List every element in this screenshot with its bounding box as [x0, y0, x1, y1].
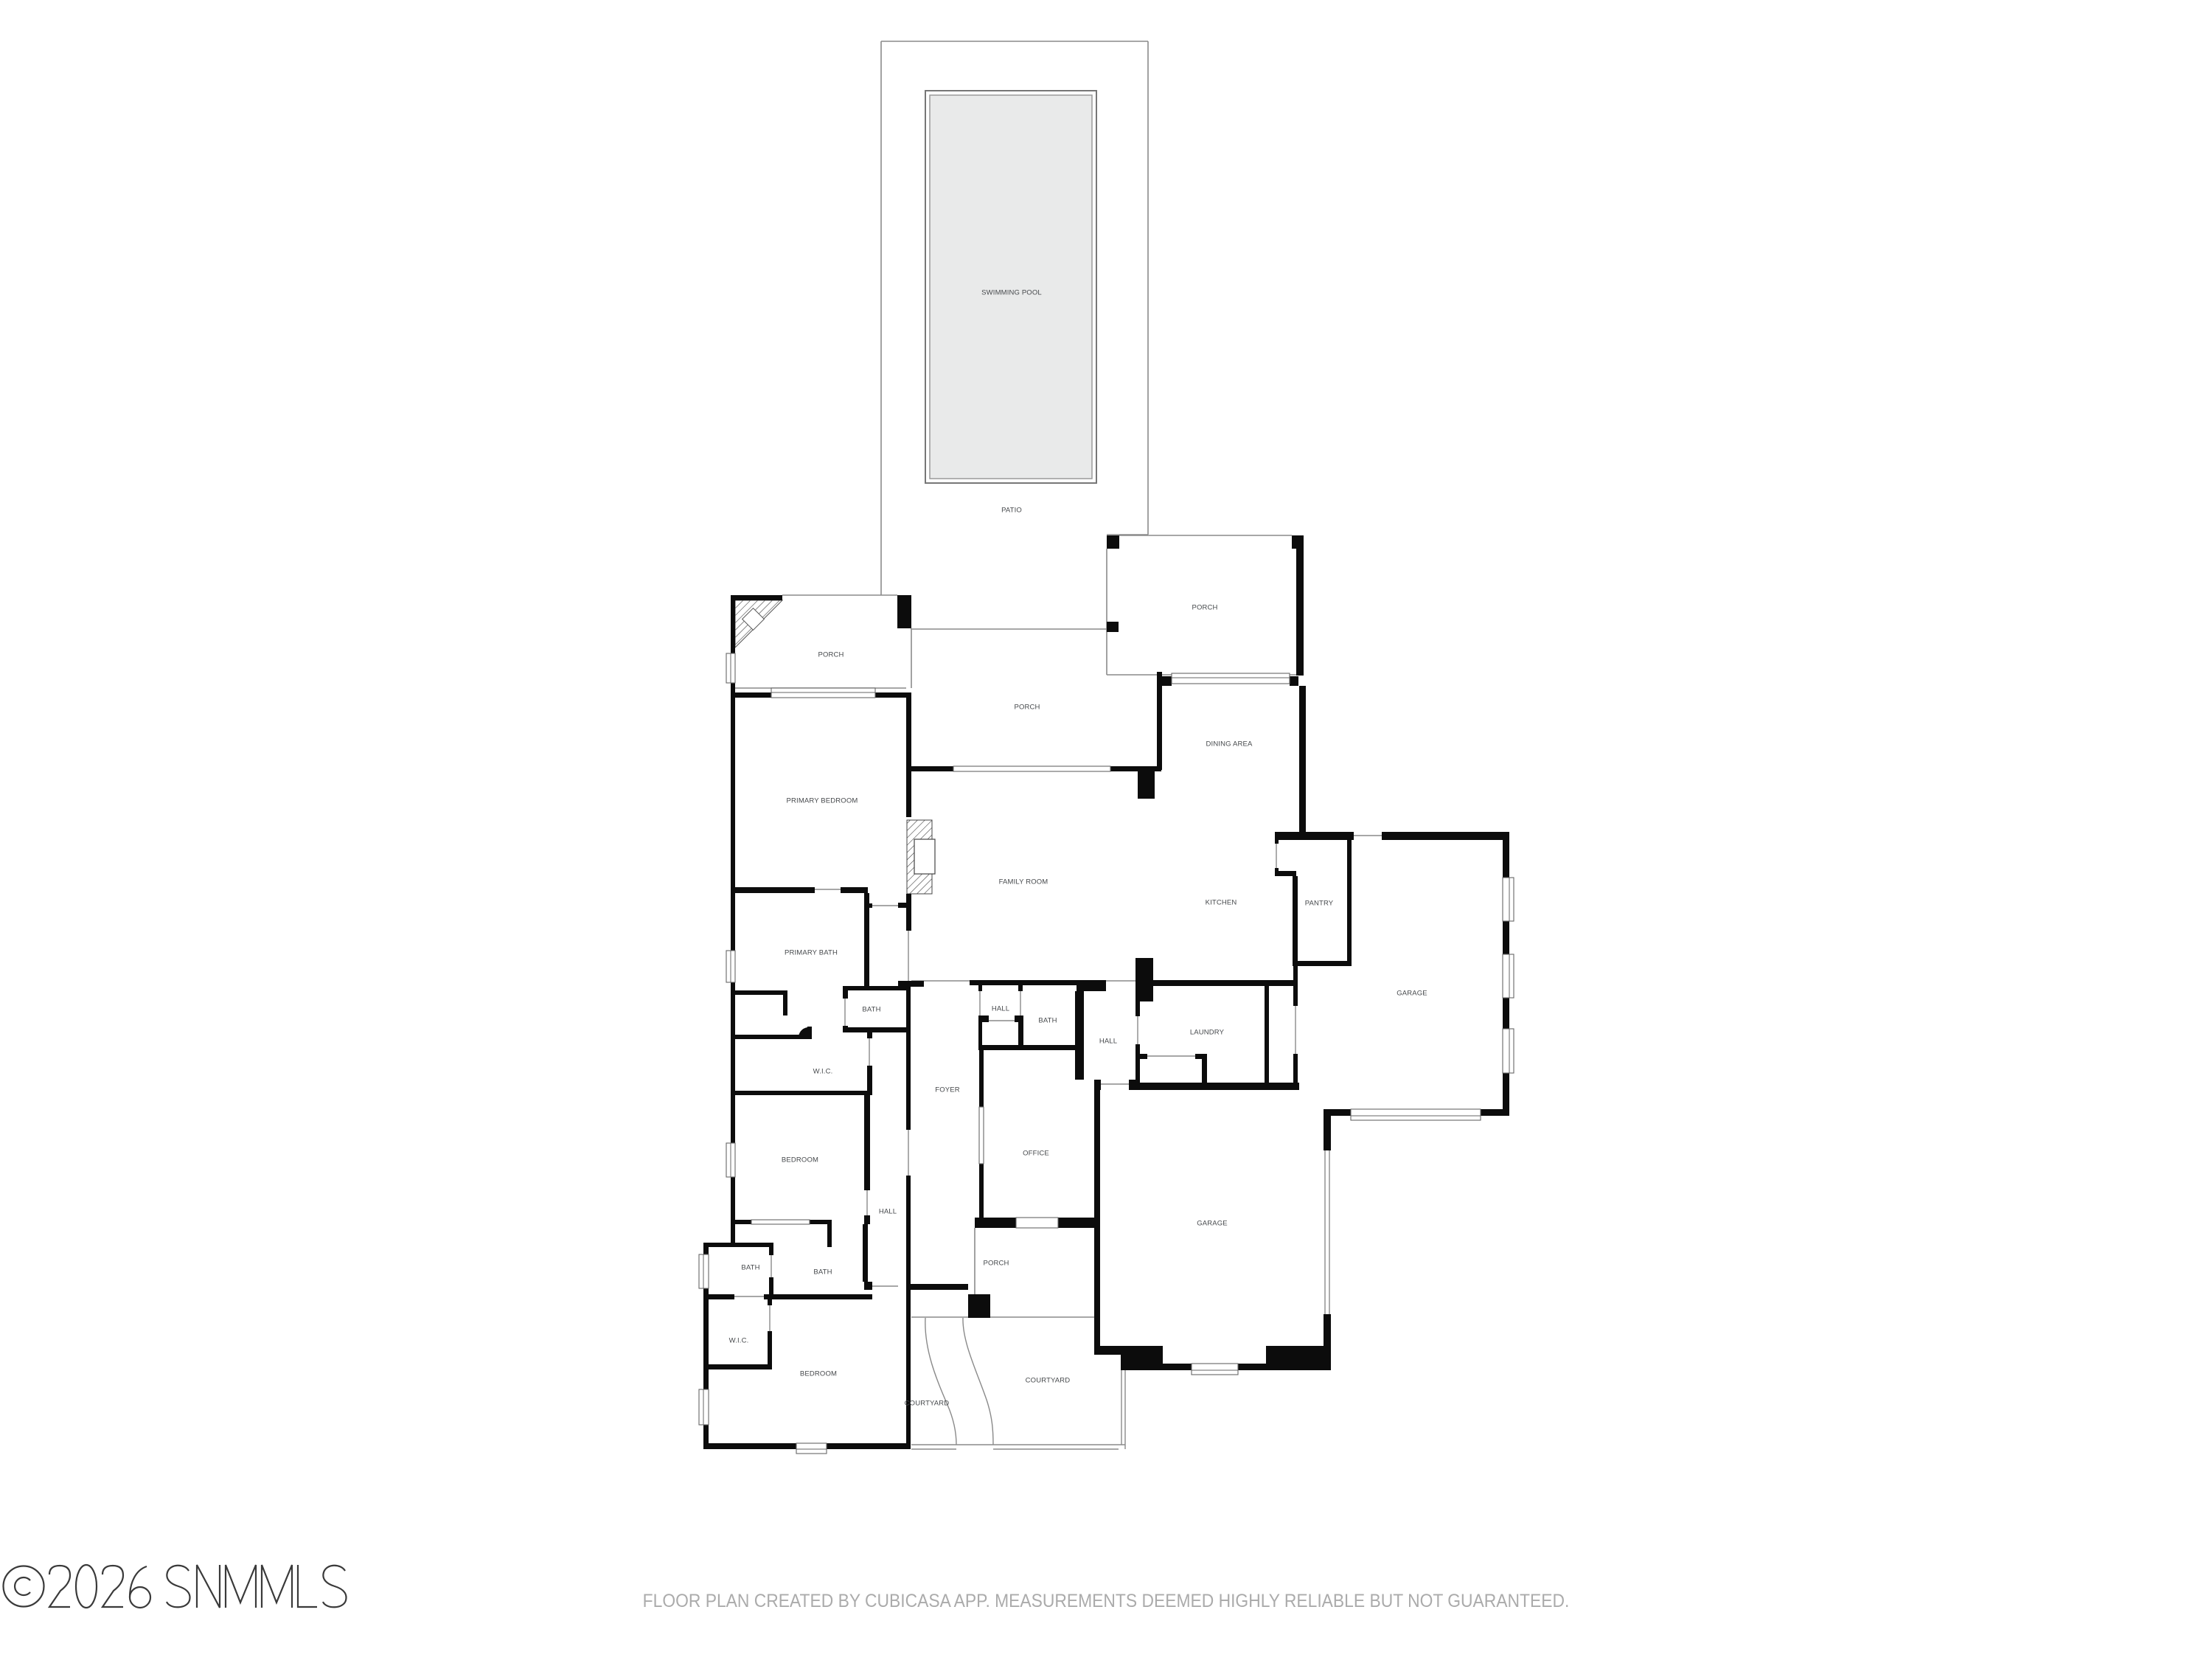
svg-text:PRIMARY BATH: PRIMARY BATH: [785, 949, 838, 957]
svg-text:FAMILY ROOM: FAMILY ROOM: [999, 878, 1048, 886]
svg-text:PATIO: PATIO: [1001, 507, 1022, 515]
svg-text:FOYER: FOYER: [935, 1086, 959, 1094]
svg-text:PORCH: PORCH: [1014, 704, 1040, 712]
svg-text:OFFICE: OFFICE: [1023, 1150, 1049, 1158]
svg-text:GARAGE: GARAGE: [1197, 1220, 1228, 1228]
svg-text:W.I.C.: W.I.C.: [813, 1068, 833, 1076]
svg-text:SWIMMING POOL: SWIMMING POOL: [981, 289, 1042, 297]
svg-text:HALL: HALL: [1099, 1038, 1117, 1046]
svg-text:COURTYARD: COURTYARD: [1026, 1377, 1071, 1385]
svg-text:HALL: HALL: [879, 1208, 897, 1216]
svg-text:W.I.C.: W.I.C.: [729, 1337, 749, 1345]
svg-text:BEDROOM: BEDROOM: [782, 1156, 818, 1164]
svg-text:PANTRY: PANTRY: [1305, 900, 1334, 908]
svg-text:LAUNDRY: LAUNDRY: [1190, 1029, 1225, 1037]
svg-text:GARAGE: GARAGE: [1397, 990, 1427, 998]
svg-text:BATH: BATH: [862, 1006, 880, 1014]
svg-text:HALL: HALL: [992, 1005, 1009, 1013]
svg-text:BATH: BATH: [813, 1268, 832, 1277]
svg-text:PORCH: PORCH: [1192, 604, 1217, 612]
svg-text:PORCH: PORCH: [818, 651, 844, 659]
svg-text:PORCH: PORCH: [983, 1260, 1009, 1268]
svg-text:BEDROOM: BEDROOM: [800, 1370, 837, 1378]
svg-text:BATH: BATH: [1038, 1017, 1057, 1025]
svg-text:PRIMARY BEDROOM: PRIMARY BEDROOM: [787, 797, 858, 805]
svg-text:COURTYARD: COURTYARD: [905, 1400, 950, 1408]
svg-text:BATH: BATH: [741, 1264, 759, 1272]
svg-text:DINING AREA: DINING AREA: [1206, 740, 1253, 749]
svg-text:KITCHEN: KITCHEN: [1206, 899, 1237, 907]
